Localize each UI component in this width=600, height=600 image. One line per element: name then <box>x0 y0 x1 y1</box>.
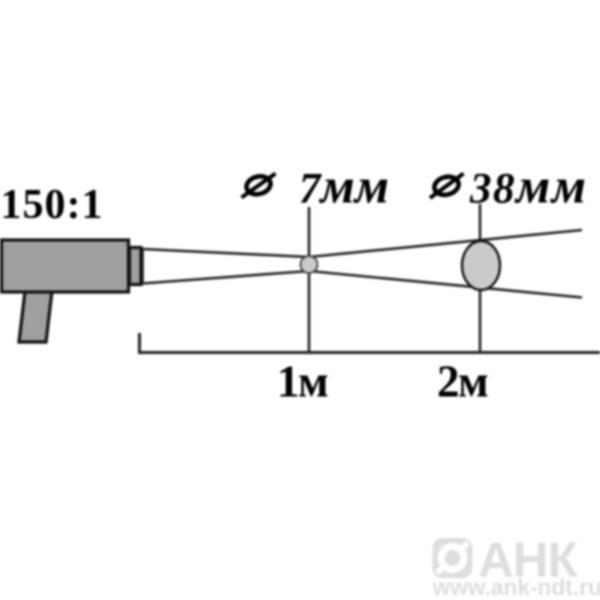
svg-text:38мм: 38мм <box>469 158 588 214</box>
svg-text:7мм: 7мм <box>299 158 389 214</box>
svg-text:www.ank-ndt.ru: www.ank-ndt.ru <box>432 574 600 600</box>
svg-text:2м: 2м <box>437 357 488 407</box>
svg-text:1м: 1м <box>277 357 328 407</box>
svg-text:150:1: 150:1 <box>1 182 104 228</box>
